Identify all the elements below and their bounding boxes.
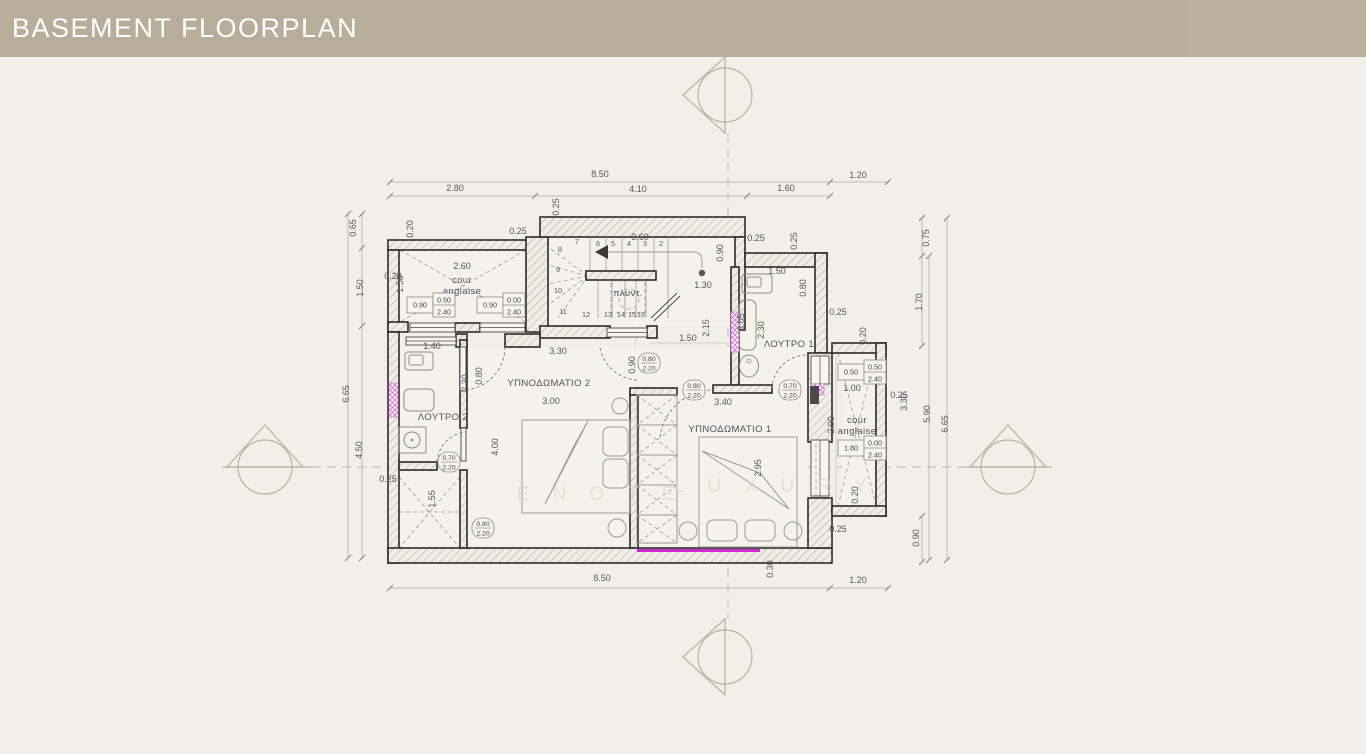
stair-number: 5 [611,239,615,248]
dimension-label: 0.80 [798,279,808,297]
door-width-value: 0.80 [687,383,700,390]
dimension-label: 1.50 [768,266,786,276]
window-sill-value: 0.50 [437,296,451,305]
dimension-label: 1.30 [694,280,712,290]
room-label: ΥΠΝΟΔΩΜΑΤΙΟ 1 [688,424,771,435]
stair-number: 12 [582,310,590,319]
window-width-value: 0.90 [413,301,427,310]
title-bar: BASEMENT FLOORPLAN [0,0,1366,57]
dimension-label: 3.00 [542,396,560,406]
room-label: cour [847,415,867,426]
grid-marker-left [222,425,312,494]
dimension-label: 5.90 [922,405,932,423]
door-width-value: 0.80 [476,521,489,528]
dimension-label: 0.90 [627,356,637,374]
stair-number: 14 [617,310,625,319]
stair-number: 8 [558,245,562,254]
dimension-label: 2.30 [756,321,766,339]
dimension-label: 8.50 [593,573,611,583]
dimension-label: 4.50 [354,441,364,459]
window-head-value: 2.40 [868,375,882,384]
window-width-value: 1.80 [844,444,858,453]
stair-number: 11 [559,307,567,316]
dimension-label: 0.25 [829,307,847,317]
dimension-label: 0.25 [379,474,397,484]
dimension-label: 0.25 [829,524,847,534]
title-bar-shade [1185,0,1366,57]
dimension-label: 0.20 [858,327,868,345]
window-head-value: 2.40 [507,308,521,317]
door-width-value: 0.80 [642,356,655,363]
dimension-label: 0.20 [405,220,415,238]
stair-number: 4 [627,239,631,248]
dimension-label: 0.25 [789,232,799,250]
stair-number: 7 [575,237,579,246]
dimension-label: 1.00 [843,383,861,393]
floorplan-drawing: 8.502.804.101.601.208.501.200.253.600.25… [0,0,1366,754]
dimension-label: 1.20 [849,170,867,180]
grid-marker-bottom [683,619,752,695]
dimension-label: 2.60 [453,261,471,271]
window-width-value: 0.50 [844,368,858,377]
room-label: ΛΟΥΤΡΟ 1 [764,339,814,350]
magenta-accent-line [637,549,760,552]
dimension-label: 1.50 [395,275,405,293]
stair-number: 3 [643,239,647,248]
stair-handrail [586,271,656,280]
dimension-label: 0.90 [911,529,921,547]
dimension-label: 3.30 [549,346,567,356]
dimension-label: 1.55 [427,490,437,508]
door-height-value: 2.20 [783,393,796,400]
dimension-label: 0.80 [474,367,484,385]
dimension-label: 1.40 [423,341,441,351]
window-sill-value: 0.00 [507,296,521,305]
stair-number: 2 [659,239,663,248]
stair-number: 10 [554,286,562,295]
dimension-label: 1.20 [849,575,867,585]
room-label: cour [452,275,472,286]
door-height-value: 2.20 [442,465,455,472]
dimension-label: 1.70 [914,293,924,311]
stair-number: 13 [604,310,612,319]
dimension-label: 0.65 [348,219,358,237]
grid-marker-top [683,57,752,133]
stair-number: 9 [556,265,560,274]
door-height-value: 2.20 [642,366,655,373]
room-label: ΥΠΝΟΔΩΜΑΤΙΟ 2 [507,378,590,389]
room-label: anglaise [838,426,877,437]
dimension-label: 1.60 [777,183,795,193]
dimension-label: 3.30 [899,393,909,411]
dimension-label: 2.15 [701,319,711,337]
dimension-label: 6.65 [341,385,351,403]
stair-number: 16 [637,310,645,319]
dimension-label: 1.50 [679,333,697,343]
dimension-label: 6.65 [940,415,950,433]
watermark-text: L U X U R Y [674,476,875,497]
room-label: ΛΟΥΤΡΟ 2 [418,412,468,423]
dimension-label: 2.95 [753,459,763,477]
dimension-label: 0.25 [509,226,527,236]
watermark-text: E N O T E [517,484,684,505]
window-head-value: 2.40 [437,308,451,317]
dimension-label: 0.25 [551,198,561,216]
door-height-value: 2.20 [687,393,700,400]
dimension-label: 0.90 [715,244,725,262]
dimension-label: 0.30 [765,560,775,578]
room-label: πλυντ. [613,288,643,299]
dimension-label: 3.40 [714,397,732,407]
dimension-label: 3.05 [736,313,746,331]
dimension-label: 8.50 [591,169,609,179]
dimension-label: 2.80 [446,183,464,193]
dimension-label: 0.75 [921,229,931,247]
dimension-label: 4.10 [629,184,647,194]
window-sill-value: 0.50 [868,363,882,372]
window-head-value: 2.40 [868,451,882,460]
dimension-label: 2.30 [460,374,470,392]
door-height-value: 2.20 [476,531,489,538]
window-width-value: 0.90 [483,301,497,310]
door-width-value: 0.70 [783,383,796,390]
window-sill-value: 0.00 [868,439,882,448]
page-title: BASEMENT FLOORPLAN [0,13,358,44]
dimension-label: 4.00 [490,438,500,456]
dimension-label: 1.50 [355,279,365,297]
grid-marker-right [965,425,1052,494]
dimension-label: 0.25 [747,233,765,243]
stair-number: 6 [596,239,600,248]
stair-number: 15 [628,310,636,319]
door-width-value: 0.70 [442,455,455,462]
dimension-label: 2.90 [826,416,836,434]
